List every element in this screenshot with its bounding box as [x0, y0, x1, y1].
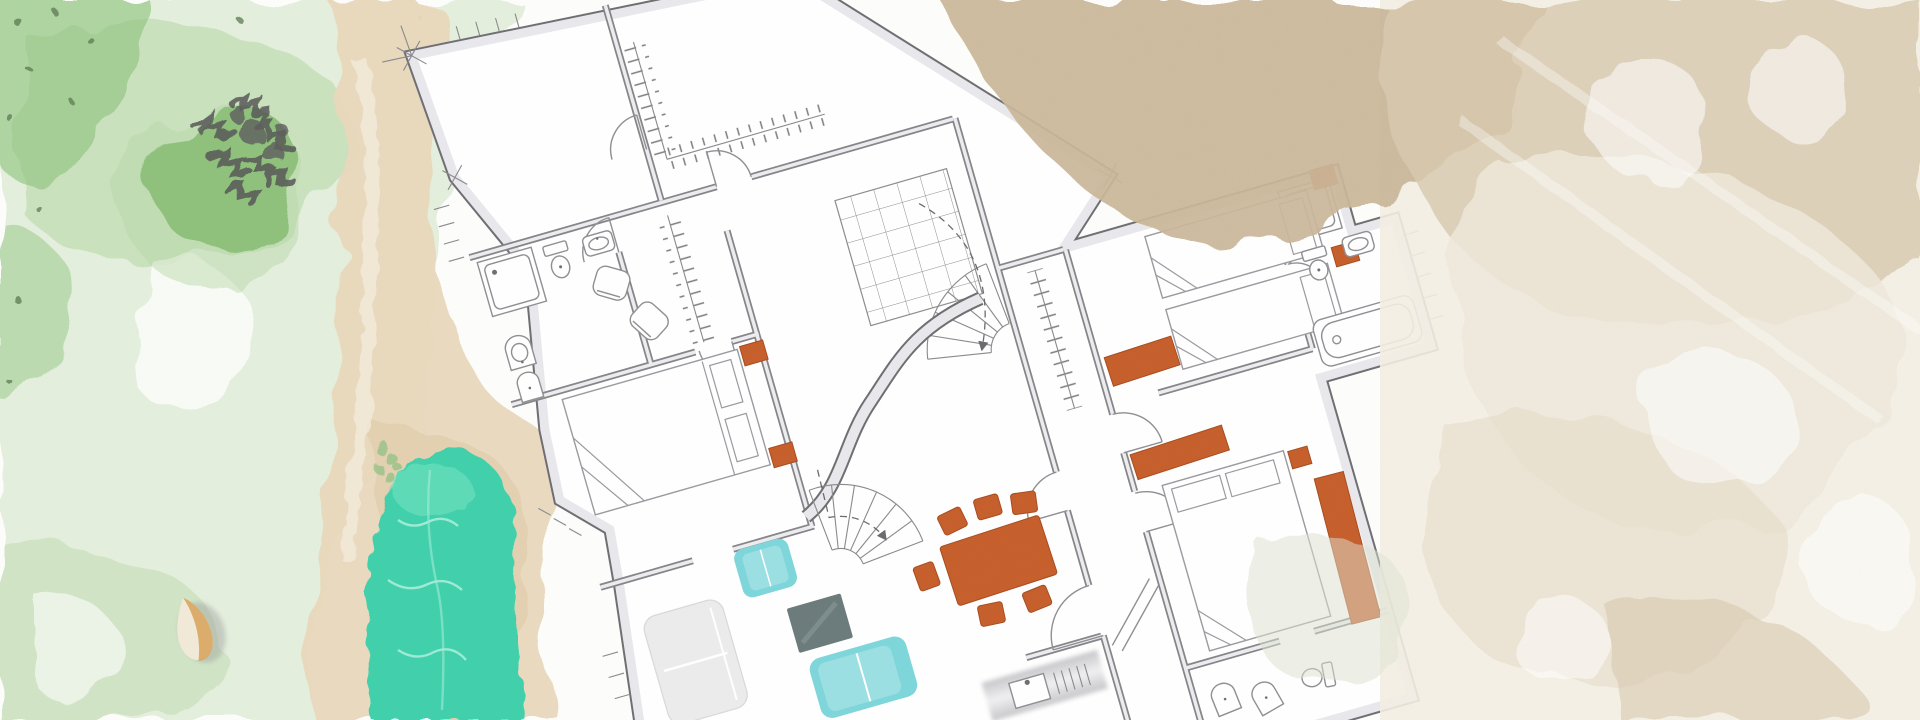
paper-grain-overlay [0, 0, 1920, 720]
scene-canvas [0, 0, 1920, 720]
watercolor-floor-plan-illustration [0, 0, 1920, 720]
